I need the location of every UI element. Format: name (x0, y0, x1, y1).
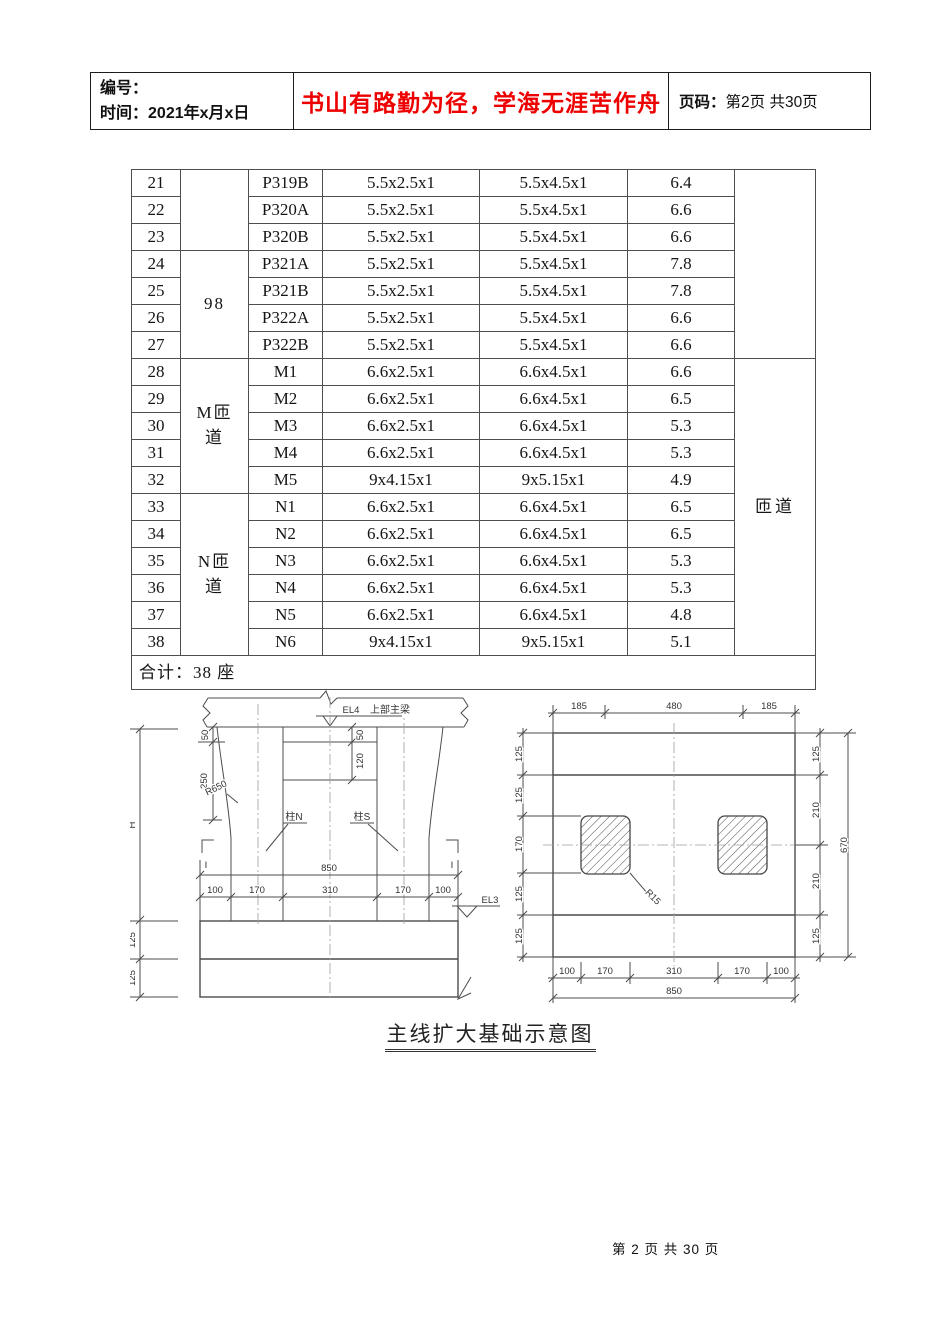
side-note-cell: 匝道 (735, 359, 816, 656)
plan-dim-cell: 6.6x2.5x1 (323, 413, 480, 440)
actual-dim-cell: 5.5x4.5x1 (480, 224, 628, 251)
actual-dim-cell: 9x5.15x1 (480, 629, 628, 656)
row-no-cell: 37 (132, 602, 181, 629)
page-label: 页码： (679, 94, 726, 111)
elevation-labels: EL4 上部主梁 50 250 R650 50 120 H 柱N 柱S I I … (130, 703, 498, 986)
plan-drawing: 185 480 185 125 210 210 125 670 125 125 … (514, 701, 856, 1003)
plan-dim-cell: 9x4.15x1 (323, 467, 480, 494)
pier-id-cell: P319B (249, 170, 323, 197)
dim-label: 170 (734, 966, 750, 977)
time-label: 时间： (100, 105, 148, 122)
pier-id-cell: N4 (249, 575, 323, 602)
dim-label: 100 (435, 885, 451, 896)
value-cell: 6.5 (628, 521, 735, 548)
dim-label: 125 (130, 970, 138, 986)
elevation-drawing: EL4 上部主梁 50 250 R650 50 120 H 柱N 柱S I I … (130, 691, 500, 1001)
pier-id-cell: P321B (249, 278, 323, 305)
plan-dim-cell: 6.6x2.5x1 (323, 494, 480, 521)
actual-dim-cell: 5.5x4.5x1 (480, 332, 628, 359)
row-no-cell: 33 (132, 494, 181, 521)
pier-id-cell: P320A (249, 197, 323, 224)
row-no-cell: 36 (132, 575, 181, 602)
elevation-linework (200, 691, 500, 999)
value-cell: 4.9 (628, 467, 735, 494)
beam-label: 上部主梁 (370, 703, 410, 716)
plan-dim-cell: 5.5x2.5x1 (323, 251, 480, 278)
dim-label: 170 (249, 885, 265, 896)
value-cell: 7.8 (628, 278, 735, 305)
el3-label: EL3 (482, 895, 499, 906)
plan-dim-cell: 6.6x2.5x1 (323, 359, 480, 386)
pier-id-cell: N3 (249, 548, 323, 575)
row-no-cell: 26 (132, 305, 181, 332)
row-no-cell: 25 (132, 278, 181, 305)
header-page-cell: 页码：第2页 共30页 (669, 73, 871, 130)
foundation-drawings: EL4 上部主梁 50 250 R650 50 120 H 柱N 柱S I I … (130, 688, 880, 1010)
dim-label: 850 (321, 863, 337, 874)
pier-id-cell: N1 (249, 494, 323, 521)
table-total-row: 合计：38 座 (132, 656, 816, 690)
value-cell: 4.8 (628, 602, 735, 629)
actual-dim-cell: 6.6x4.5x1 (480, 521, 628, 548)
dim-label: 50 (200, 730, 211, 741)
page-value: 第2页 共30页 (726, 94, 818, 111)
total-cell: 合计：38 座 (132, 656, 816, 690)
row-no-cell: 30 (132, 413, 181, 440)
plan-labels: 185 480 185 125 210 210 125 670 125 125 … (514, 701, 850, 997)
pier-id-cell: M1 (249, 359, 323, 386)
group-cell: N匝道 (181, 494, 249, 656)
time-value: 2021年x月x日 (148, 105, 249, 122)
pier-id-cell: P322B (249, 332, 323, 359)
section-marker-label: I (451, 860, 454, 871)
row-no-cell: 29 (132, 386, 181, 413)
row-no-cell: 32 (132, 467, 181, 494)
plan-dim-cell: 6.6x2.5x1 (323, 575, 480, 602)
header-id-cell: 编号： 时间：2021年x月x日 (91, 73, 294, 130)
dim-label: 170 (597, 966, 613, 977)
column-n-label: 柱N (285, 810, 302, 823)
actual-dim-cell: 5.5x4.5x1 (480, 305, 628, 332)
height-label: H (130, 821, 138, 828)
side-note-cell (735, 170, 816, 359)
row-no-cell: 28 (132, 359, 181, 386)
plan-dim-cell: 5.5x2.5x1 (323, 305, 480, 332)
value-cell: 5.3 (628, 548, 735, 575)
dim-label: 125 (811, 928, 822, 944)
value-cell: 5.1 (628, 629, 735, 656)
pier-id-cell: M3 (249, 413, 323, 440)
value-cell: 6.4 (628, 170, 735, 197)
plan-dim-cell: 6.6x2.5x1 (323, 521, 480, 548)
value-cell: 6.5 (628, 386, 735, 413)
actual-dim-cell: 5.5x4.5x1 (480, 278, 628, 305)
pier-id-cell: P320B (249, 224, 323, 251)
row-no-cell: 23 (132, 224, 181, 251)
row-no-cell: 21 (132, 170, 181, 197)
plan-dimension-lines (517, 705, 856, 1003)
dim-label: 170 (395, 885, 411, 896)
column-s-label: 柱S (354, 810, 371, 823)
dim-label: 125 (130, 932, 138, 948)
table-row: 24 98 P321A 5.5x2.5x1 5.5x4.5x1 7.8 (132, 251, 816, 278)
pier-id-cell: P321A (249, 251, 323, 278)
value-cell: 5.3 (628, 575, 735, 602)
pier-id-cell: M4 (249, 440, 323, 467)
dim-label: 310 (666, 966, 682, 977)
dim-label: 120 (355, 753, 366, 769)
dim-label: 185 (571, 701, 587, 712)
corner-radius-label: R15 (643, 887, 663, 907)
dim-label: 125 (514, 787, 525, 803)
pier-id-cell: P322A (249, 305, 323, 332)
group-cell (181, 170, 249, 251)
plan-dim-cell: 6.6x2.5x1 (323, 386, 480, 413)
value-cell: 6.6 (628, 197, 735, 224)
row-no-cell: 31 (132, 440, 181, 467)
actual-dim-cell: 6.6x4.5x1 (480, 440, 628, 467)
dim-label: 210 (811, 873, 822, 889)
dim-label: 125 (514, 746, 525, 762)
table-row: 28 M匝道 M1 6.6x2.5x1 6.6x4.5x1 6.6 匝道 (132, 359, 816, 386)
page-header-table: 编号： 时间：2021年x月x日 书山有路勤为径，学海无涯苦作舟 页码：第2页 … (90, 72, 871, 130)
dim-label: 125 (514, 886, 525, 902)
pier-id-cell: M2 (249, 386, 323, 413)
plan-dim-cell: 6.6x2.5x1 (323, 548, 480, 575)
time-line: 时间：2021年x月x日 (100, 101, 293, 126)
value-cell: 6.6 (628, 359, 735, 386)
foundation-schedule-table: 21 P319B 5.5x2.5x1 5.5x4.5x1 6.4 22 P320… (131, 169, 816, 690)
row-no-cell: 24 (132, 251, 181, 278)
group-cell: 98 (181, 251, 249, 359)
plan-dim-cell: 5.5x2.5x1 (323, 170, 480, 197)
value-cell: 7.8 (628, 251, 735, 278)
value-cell: 5.3 (628, 440, 735, 467)
dim-label: 100 (207, 885, 223, 896)
dim-label: 170 (514, 836, 525, 852)
dim-label: 100 (559, 966, 575, 977)
table-row: 21 P319B 5.5x2.5x1 5.5x4.5x1 6.4 (132, 170, 816, 197)
dim-label: 50 (355, 730, 366, 741)
dim-label: 100 (773, 966, 789, 977)
actual-dim-cell: 6.6x4.5x1 (480, 359, 628, 386)
plan-dimension-ticks (519, 709, 852, 1002)
plan-dim-cell: 5.5x2.5x1 (323, 224, 480, 251)
plan-dim-cell: 6.6x2.5x1 (323, 440, 480, 467)
dim-label: 850 (666, 986, 682, 997)
group-cell: M匝道 (181, 359, 249, 494)
header-motto-cell: 书山有路勤为径，学海无涯苦作舟 (294, 73, 669, 130)
value-cell: 6.6 (628, 332, 735, 359)
actual-dim-cell: 9x5.15x1 (480, 467, 628, 494)
motto-text: 书山有路勤为径，学海无涯苦作舟 (301, 90, 661, 116)
page-footer: 第 2 页 共 30 页 (612, 1238, 719, 1258)
plan-dim-cell: 5.5x2.5x1 (323, 197, 480, 224)
dim-label: 670 (839, 837, 850, 853)
el4-label: EL4 (343, 705, 360, 716)
actual-dim-cell: 6.6x4.5x1 (480, 602, 628, 629)
row-no-cell: 27 (132, 332, 181, 359)
dim-label: 210 (811, 802, 822, 818)
plan-dim-cell: 6.6x2.5x1 (323, 602, 480, 629)
actual-dim-cell: 6.6x4.5x1 (480, 413, 628, 440)
value-cell: 6.5 (628, 494, 735, 521)
pier-id-cell: M5 (249, 467, 323, 494)
dim-label: 125 (514, 928, 525, 944)
dim-label: 185 (761, 701, 777, 712)
value-cell: 6.6 (628, 305, 735, 332)
pier-id-cell: N6 (249, 629, 323, 656)
number-label: 编号： (100, 76, 293, 101)
caption-text: 主线扩大基础示意图 (385, 1022, 596, 1052)
section-marker-label: I (205, 860, 208, 871)
actual-dim-cell: 5.5x4.5x1 (480, 251, 628, 278)
dim-label: 125 (811, 746, 822, 762)
pier-id-cell: N2 (249, 521, 323, 548)
plan-dim-cell: 5.5x2.5x1 (323, 278, 480, 305)
dim-label: 480 (666, 701, 682, 712)
drawing-caption: 主线扩大基础示意图 (355, 1018, 625, 1048)
row-no-cell: 22 (132, 197, 181, 224)
value-cell: 5.3 (628, 413, 735, 440)
plan-dim-cell: 5.5x2.5x1 (323, 332, 480, 359)
table-row: 33 N匝道 N1 6.6x2.5x1 6.6x4.5x1 6.5 (132, 494, 816, 521)
actual-dim-cell: 5.5x4.5x1 (480, 170, 628, 197)
pier-id-cell: N5 (249, 602, 323, 629)
row-no-cell: 34 (132, 521, 181, 548)
value-cell: 6.6 (628, 224, 735, 251)
dim-label: 310 (322, 885, 338, 896)
actual-dim-cell: 6.6x4.5x1 (480, 575, 628, 602)
plan-dim-cell: 9x4.15x1 (323, 629, 480, 656)
actual-dim-cell: 5.5x4.5x1 (480, 197, 628, 224)
row-no-cell: 38 (132, 629, 181, 656)
actual-dim-cell: 6.6x4.5x1 (480, 548, 628, 575)
row-no-cell: 35 (132, 548, 181, 575)
elevation-dimension-lines (130, 727, 458, 997)
actual-dim-cell: 6.6x4.5x1 (480, 386, 628, 413)
actual-dim-cell: 6.6x4.5x1 (480, 494, 628, 521)
